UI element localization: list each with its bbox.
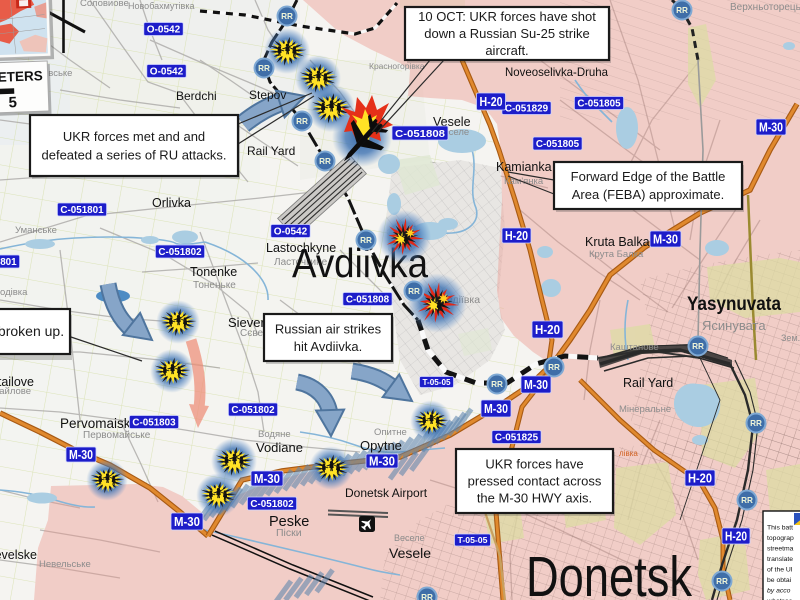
svg-text:RR: RR <box>296 117 308 126</box>
svg-text:Ясинувата: Ясинувата <box>702 318 766 333</box>
svg-text:down a Russian Su-25 strike: down a Russian Su-25 strike <box>424 26 589 41</box>
svg-text:Уманське: Уманське <box>15 225 57 236</box>
svg-text:M-30: M-30 <box>484 402 508 416</box>
svg-text:Forward Edge of the Battle: Forward Edge of the Battle <box>571 169 726 184</box>
svg-text:Rail Yard: Rail Yard <box>623 376 673 390</box>
svg-text:M-30: M-30 <box>759 121 783 135</box>
svg-text:RR: RR <box>360 236 372 245</box>
svg-text:RR: RR <box>676 6 688 15</box>
svg-text:This batt: This batt <box>767 525 793 532</box>
svg-text:Vodiane: Vodiane <box>256 440 303 455</box>
svg-text:Berdchi: Berdchi <box>176 89 217 103</box>
svg-text:Веселе: Веселе <box>394 533 424 543</box>
svg-text:Opytne: Opytne <box>360 438 402 453</box>
svg-text:Noveoselivka-Druha: Noveoselivka-Druha <box>505 65 608 79</box>
svg-text:C-051802: C-051802 <box>231 405 275 416</box>
svg-text:Yasynuvata: Yasynuvata <box>687 294 781 315</box>
svg-text:Donetsk Airport: Donetsk Airport <box>345 486 428 500</box>
svg-text:M-30: M-30 <box>369 455 395 469</box>
svg-text:RR: RR <box>491 380 503 389</box>
svg-text:Vesele: Vesele <box>389 545 431 561</box>
svg-text:RR: RR <box>741 496 753 505</box>
svg-text:translate: translate <box>767 556 793 563</box>
svg-text:Невельське: Невельське <box>39 559 91 570</box>
svg-text:H-20: H-20 <box>688 472 712 486</box>
svg-text:C-051801: C-051801 <box>0 257 17 268</box>
svg-text:Donetsk: Donetsk <box>526 545 692 600</box>
svg-text:O-0542: O-0542 <box>147 25 181 36</box>
svg-text:RR: RR <box>421 593 433 600</box>
svg-text:ETERS: ETERS <box>0 68 43 85</box>
svg-text:C-051825: C-051825 <box>495 433 539 444</box>
svg-text:Tonenke: Tonenke <box>190 265 237 279</box>
svg-text:UKR forces have: UKR forces have <box>485 457 583 472</box>
svg-text:C-051829: C-051829 <box>505 104 549 115</box>
svg-text:O-0542: O-0542 <box>274 227 308 238</box>
svg-text:Pervomaiske: Pervomaiske <box>60 416 138 431</box>
svg-text:M-30: M-30 <box>653 233 678 247</box>
svg-text:by acco: by acco <box>767 588 791 595</box>
svg-text:T-05-05: T-05-05 <box>423 378 451 387</box>
svg-text:defeated a series of RU attack: defeated a series of RU attacks. <box>42 147 227 162</box>
svg-text:Netailove: Netailove <box>0 375 34 389</box>
svg-text:Rail Yard: Rail Yard <box>247 144 295 158</box>
svg-text:M-30: M-30 <box>174 515 200 529</box>
svg-text:RR: RR <box>548 363 560 372</box>
svg-text:Russian air strikes: Russian air strikes <box>275 321 382 336</box>
svg-text:Водяне: Водяне <box>258 429 291 440</box>
svg-text:H-20: H-20 <box>505 229 528 243</box>
svg-text:RR: RR <box>408 287 420 296</box>
svg-text:5: 5 <box>8 94 17 111</box>
svg-text:C-051803: C-051803 <box>132 418 176 429</box>
svg-text:of the UI: of the UI <box>767 567 793 574</box>
svg-text:C-051808: C-051808 <box>395 128 445 140</box>
svg-text:Тоненьке: Тоненьке <box>193 280 236 291</box>
svg-text:10 OCT: UKR forces have shot: 10 OCT: UKR forces have shot <box>418 9 596 24</box>
svg-text:C-051808: C-051808 <box>346 295 390 306</box>
svg-text:streetma: streetma <box>767 546 794 553</box>
svg-text:Kruta Balka: Kruta Balka <box>585 235 650 249</box>
svg-text:Nevelske: Nevelske <box>0 548 37 562</box>
svg-text:Опитне: Опитне <box>374 427 407 438</box>
svg-text:Зем.: Зем. <box>781 333 800 343</box>
svg-text:C-051802: C-051802 <box>250 499 294 510</box>
svg-text:Верхньоторецьке: Верхньоторецьке <box>730 2 800 13</box>
svg-text:C-051802: C-051802 <box>158 247 202 258</box>
svg-text:hit Avdiivka.: hit Avdiivka. <box>294 339 362 354</box>
svg-text:M-30: M-30 <box>254 472 280 486</box>
svg-text:H-20: H-20 <box>480 95 503 109</box>
svg-text:лівка: лівка <box>619 449 638 458</box>
svg-text:H-20: H-20 <box>535 323 560 337</box>
svg-text:M-30: M-30 <box>69 448 93 462</box>
svg-text:C-051805: C-051805 <box>577 99 621 110</box>
svg-text:одівка: одівка <box>0 287 28 298</box>
svg-text:be obtai: be obtai <box>767 577 792 584</box>
svg-text:C-051801: C-051801 <box>60 205 104 216</box>
svg-text:Соловиове: Соловиове <box>80 0 129 9</box>
svg-text:RR: RR <box>281 12 293 21</box>
svg-text:M-30: M-30 <box>524 378 548 392</box>
svg-text:Peske: Peske <box>269 514 309 530</box>
svg-text:Stepov: Stepov <box>249 88 286 102</box>
svg-text:Мінеральне: Мінеральне <box>619 404 671 415</box>
svg-text:broken up.: broken up. <box>0 323 64 339</box>
svg-text:RR: RR <box>319 157 331 166</box>
svg-text:H-20: H-20 <box>725 530 747 544</box>
svg-text:Новобахмутівка: Новобахмутівка <box>128 1 194 11</box>
svg-text:Area (FEBA) approximate.: Area (FEBA) approximate. <box>572 187 724 202</box>
svg-text:C-051805: C-051805 <box>536 139 580 150</box>
svg-text:RR: RR <box>692 342 704 351</box>
svg-text:RR: RR <box>258 64 270 73</box>
svg-text:RR: RR <box>750 419 762 428</box>
svg-text:RR: RR <box>716 577 728 586</box>
svg-text:topograp: topograp <box>767 535 794 542</box>
svg-text:Крута Балка: Крута Балка <box>589 249 644 260</box>
svg-text:Каштанове: Каштанове <box>610 342 659 353</box>
svg-text:pressed contact across: pressed contact across <box>468 474 602 489</box>
svg-text:T-05-05: T-05-05 <box>458 535 488 545</box>
svg-text:UKR forces met and and: UKR forces met and and <box>63 129 205 144</box>
svg-text:the M-30 HWY axis.: the M-30 HWY axis. <box>477 491 592 506</box>
svg-text:Первомайське: Первомайське <box>83 430 151 441</box>
svg-text:Kamianka: Kamianka <box>496 160 552 174</box>
svg-text:aircraft.: aircraft. <box>485 43 528 58</box>
svg-text:O-0542: O-0542 <box>150 67 184 78</box>
svg-text:Orlivka: Orlivka <box>152 196 191 210</box>
